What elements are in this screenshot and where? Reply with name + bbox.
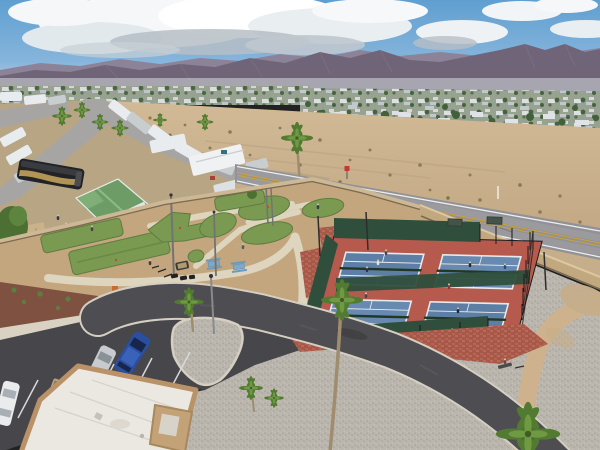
aerial-photo xyxy=(0,0,600,450)
scene-canvas xyxy=(0,0,600,450)
teal-accent xyxy=(221,150,227,154)
pedestrian xyxy=(57,214,60,220)
red-accent xyxy=(210,176,215,180)
